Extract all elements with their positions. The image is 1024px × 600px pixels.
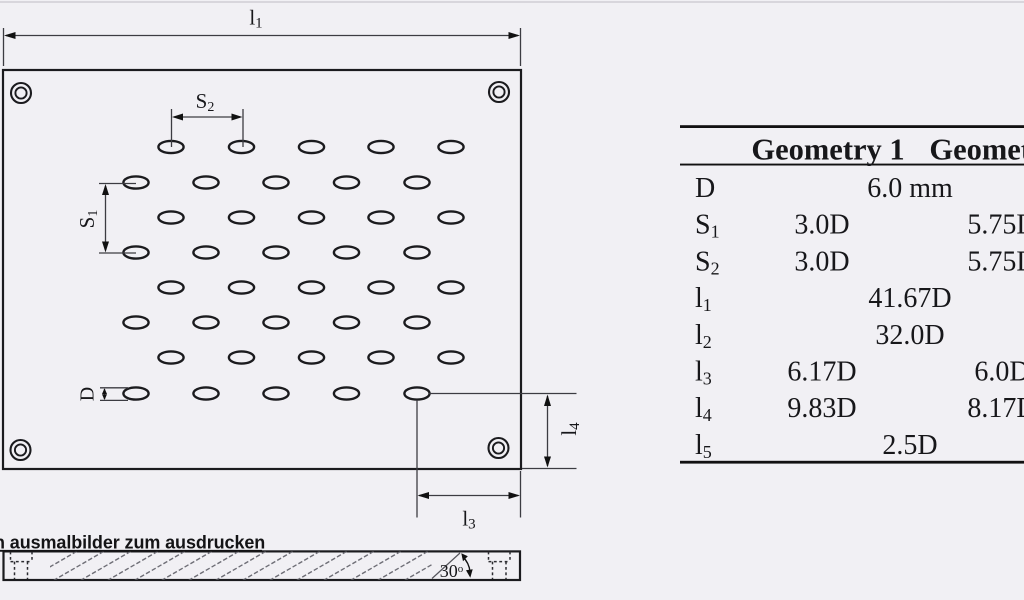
svg-text:l1: l1 <box>249 6 262 32</box>
svg-text:6.17D: 6.17D <box>787 357 856 388</box>
svg-text:l5: l5 <box>695 430 712 462</box>
svg-text:32.0D: 32.0D <box>875 320 944 351</box>
svg-text:S1: S1 <box>75 210 101 229</box>
svg-text:l2: l2 <box>695 320 712 352</box>
svg-text:Geometry 1: Geometry 1 <box>751 133 904 167</box>
svg-text:30o: 30o <box>440 561 464 581</box>
svg-text:6.0 mm: 6.0 mm <box>867 173 953 204</box>
svg-text:l1: l1 <box>695 283 712 315</box>
svg-text:3.0D: 3.0D <box>794 210 849 241</box>
svg-text:2.5D: 2.5D <box>882 430 937 461</box>
svg-text:l3: l3 <box>695 357 712 389</box>
svg-text:5.75D: 5.75D <box>967 210 1024 241</box>
svg-text:n ausmalbilder zum ausdrucken: n ausmalbilder zum ausdrucken <box>0 533 265 553</box>
svg-text:9.83D: 9.83D <box>787 393 856 424</box>
svg-text:D: D <box>695 173 715 204</box>
svg-text:8.17D: 8.17D <box>967 393 1024 424</box>
svg-text:3.0D: 3.0D <box>794 246 849 277</box>
svg-text:D: D <box>77 387 99 401</box>
svg-text:l4: l4 <box>557 422 583 436</box>
svg-text:Geometry 2: Geometry 2 <box>929 133 1024 167</box>
svg-text:S1: S1 <box>695 210 720 242</box>
svg-text:41.67D: 41.67D <box>868 283 951 314</box>
svg-text:5.75D: 5.75D <box>967 246 1024 277</box>
svg-text:6.0D: 6.0D <box>974 357 1024 388</box>
svg-text:l4: l4 <box>695 393 712 425</box>
svg-text:l3: l3 <box>462 507 475 533</box>
svg-text:S2: S2 <box>695 246 720 278</box>
svg-text:S2: S2 <box>196 89 215 115</box>
